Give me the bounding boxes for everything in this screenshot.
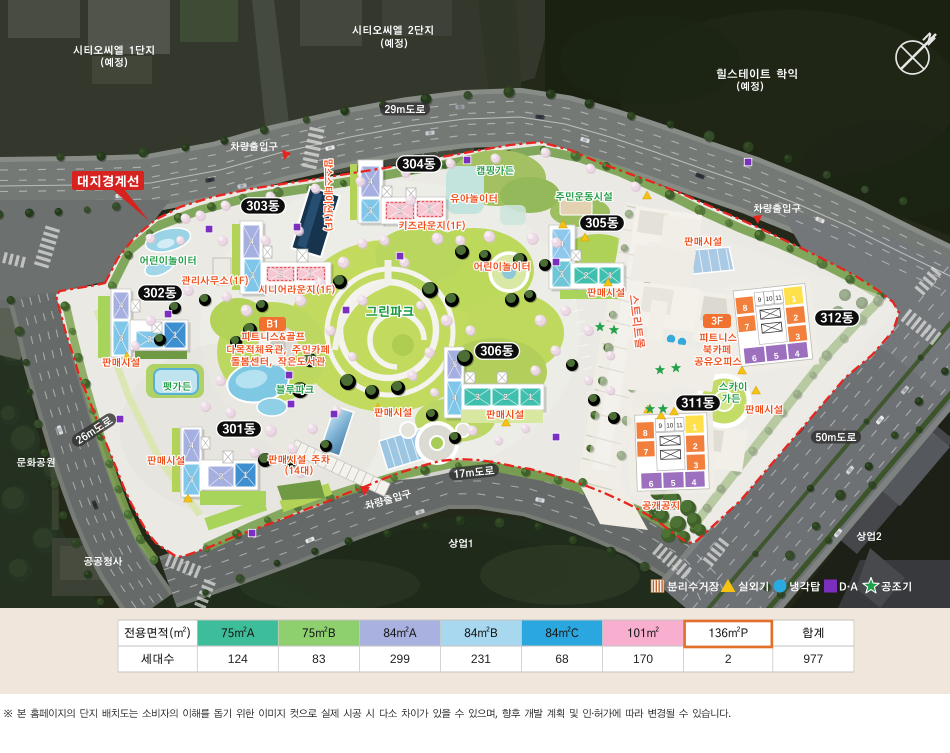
- svg-text:1: 1: [172, 330, 177, 340]
- svg-text:2: 2: [503, 392, 508, 402]
- svg-text:8: 8: [643, 428, 648, 438]
- svg-text:299: 299: [390, 652, 410, 666]
- svg-text:4: 4: [452, 393, 457, 403]
- svg-text:170: 170: [633, 652, 653, 666]
- svg-text:1: 1: [243, 470, 248, 480]
- svg-text:4: 4: [368, 177, 373, 187]
- svg-text:10: 10: [666, 422, 674, 429]
- svg-text:2: 2: [725, 652, 732, 666]
- svg-text:3: 3: [368, 206, 373, 216]
- svg-text:5: 5: [671, 478, 676, 488]
- svg-text:4: 4: [189, 441, 194, 451]
- svg-text:2: 2: [583, 271, 588, 281]
- svg-text:4: 4: [118, 301, 123, 311]
- svg-text:7: 7: [643, 447, 648, 457]
- svg-text:2: 2: [218, 472, 223, 482]
- svg-text:11: 11: [676, 422, 683, 429]
- svg-text:1: 1: [308, 269, 313, 279]
- svg-text:3: 3: [693, 460, 698, 470]
- svg-text:124: 124: [228, 652, 248, 666]
- svg-text:2: 2: [693, 441, 698, 451]
- svg-text:68: 68: [555, 652, 569, 666]
- svg-text:1: 1: [427, 204, 432, 214]
- svg-text:10: 10: [765, 295, 773, 303]
- svg-text:3: 3: [250, 271, 255, 281]
- svg-text:3: 3: [559, 269, 564, 279]
- svg-text:11: 11: [775, 294, 783, 302]
- svg-text:83: 83: [312, 652, 326, 666]
- svg-text:3: 3: [189, 475, 194, 485]
- svg-text:2: 2: [397, 206, 402, 216]
- svg-text:3: 3: [118, 333, 123, 343]
- svg-text:1: 1: [528, 392, 533, 402]
- svg-text:1: 1: [692, 422, 697, 432]
- svg-text:2: 2: [147, 335, 152, 345]
- svg-text:977: 977: [803, 652, 823, 666]
- svg-text:4: 4: [692, 477, 697, 487]
- svg-text:2: 2: [278, 269, 283, 279]
- svg-text:4: 4: [249, 237, 254, 247]
- svg-text:3: 3: [475, 392, 480, 402]
- svg-text:6: 6: [649, 479, 654, 489]
- svg-text:231: 231: [471, 652, 491, 666]
- svg-text:5: 5: [452, 360, 457, 370]
